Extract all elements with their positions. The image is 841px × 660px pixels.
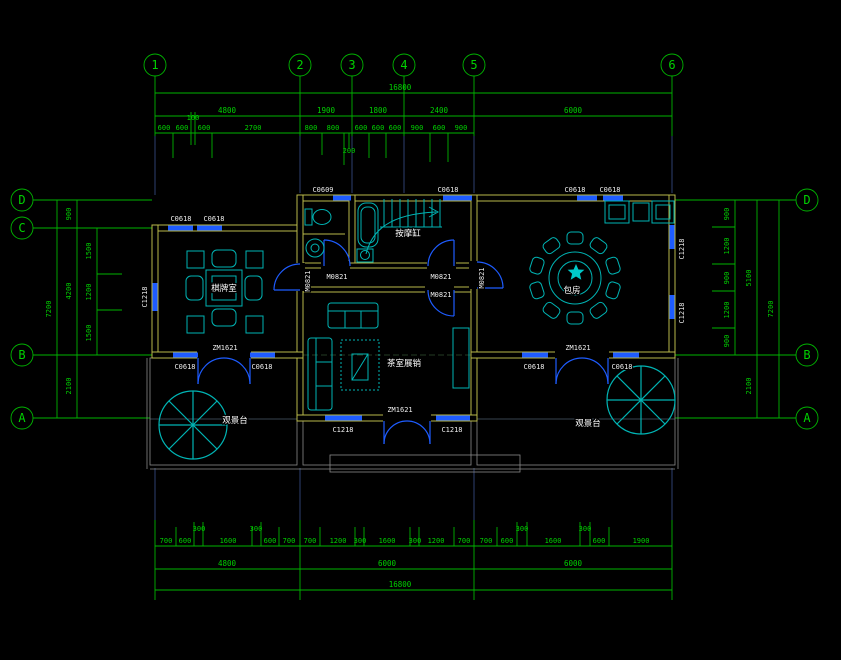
deck-left: [150, 358, 297, 465]
dim-bot-sub: 600: [501, 537, 514, 545]
axis-label: A: [803, 411, 811, 425]
dim-top-seg: 1800: [369, 106, 388, 115]
axis-label: D: [18, 193, 25, 207]
grid-bubble-column-6: 6: [661, 54, 683, 136]
window-label: C0618: [437, 186, 458, 194]
window-c0618: [603, 196, 623, 201]
window-label: C0618: [599, 186, 620, 194]
axis-label: D: [803, 193, 810, 207]
window-label: C0618: [170, 215, 191, 223]
dim-bot-sub: 600: [179, 537, 192, 545]
dim-top-seg: 6000: [564, 106, 583, 115]
dim-bot-seg: 4800: [218, 559, 237, 568]
wall-axis2: [297, 195, 303, 421]
window-label: C1218: [441, 426, 462, 434]
axis-label: 1: [151, 58, 158, 72]
window-c1218: [436, 416, 470, 421]
window-c0618: [173, 353, 198, 358]
dim-top-sub: 600: [176, 124, 189, 132]
grid-bubble-row-B-left: B: [11, 344, 33, 366]
dim-top-sub: 100: [187, 114, 200, 122]
axis-label: A: [18, 411, 26, 425]
dim-left-total: 7200: [45, 301, 53, 318]
sink: [306, 239, 324, 257]
axis-label: 2: [296, 58, 303, 72]
window-c0618: [443, 196, 472, 201]
deck-steps: [330, 455, 520, 472]
dim-right-total: 7200: [767, 301, 775, 318]
dim-bot-seg: 6000: [564, 559, 583, 568]
window-label: C0618: [251, 363, 272, 371]
window-c1218: [153, 283, 158, 311]
dim-top-sub: 600: [389, 124, 402, 132]
bathtub: [358, 203, 378, 247]
double-door-right-deck: [556, 358, 608, 384]
door-label: M0821: [478, 267, 486, 288]
axis-label: 4: [400, 58, 407, 72]
dimensions-top: 16800 4800 1900 1800 2400 6000 600 600 1…: [155, 83, 672, 165]
room-label-deck-left: 观景台: [222, 415, 248, 426]
dim-left-mid: 900: [65, 208, 73, 221]
dim-right-sub: 1200: [723, 302, 731, 319]
window-c0618: [250, 353, 275, 358]
dim-top-sub: 800: [327, 124, 340, 132]
window-label: C0618: [174, 363, 195, 371]
deck-right: [477, 358, 675, 465]
door-label: M0821: [304, 270, 312, 291]
floor-plan-svg: 1 2 3 4 5 6 D C B A D B A 16800 4800 190…: [0, 0, 841, 660]
grid-bubble-row-B-right: B: [796, 344, 818, 366]
axis-label: B: [803, 348, 810, 362]
washbasin: [357, 249, 373, 262]
dim-right-mid: 2100: [745, 378, 753, 395]
grid-bubble-row-D-right: D: [796, 189, 818, 211]
dim-bot-sub: 1600: [379, 537, 396, 545]
dim-left-sub: 1500: [85, 325, 93, 342]
dim-bot-sub: 700: [283, 537, 296, 545]
window-label: C1218: [678, 302, 686, 323]
axis-label: 6: [668, 58, 675, 72]
toilet: [305, 209, 331, 225]
door-label: M0821: [430, 291, 451, 299]
dim-top-sub: 800: [305, 124, 318, 132]
cabinets-private-room: [605, 201, 674, 223]
wall-axis5: [471, 195, 477, 421]
axis-label: C: [18, 221, 25, 235]
dim-top-sub: 900: [411, 124, 424, 132]
dim-top-ticks: [173, 112, 448, 165]
dim-bot-sub: 300: [516, 525, 529, 533]
window-label: C1218: [332, 426, 353, 434]
dimensions-left: 7200 900 4200 2100 1500 1200 1500: [45, 200, 122, 418]
dimensions-bottom: 700 600 300 1600 300 600 700 700 1200 30…: [155, 520, 672, 600]
dim-top-sub: 600: [433, 124, 446, 132]
dim-top-sub: 200: [343, 147, 356, 155]
dim-bot-sub: 700: [160, 537, 173, 545]
dim-bot-sub: 700: [480, 537, 493, 545]
dim-top-seg: 2400: [430, 106, 449, 115]
dim-bot-total: 16800: [389, 580, 412, 589]
window-c0618: [197, 226, 222, 231]
dim-top-sub: 600: [158, 124, 171, 132]
dimensions-right: 900 1200 900 1200 900 5100 2100 7200: [712, 200, 779, 418]
window-c0618: [168, 226, 193, 231]
window-label: C0618: [523, 363, 544, 371]
dim-bot-sub: 1200: [428, 537, 445, 545]
door-label: ZM1621: [565, 344, 590, 352]
axis-label: B: [18, 348, 25, 362]
door-gaps: [197, 261, 609, 423]
door-label: M0821: [326, 273, 347, 281]
dim-right-sub: 900: [723, 208, 731, 221]
double-door-tea-deck: [384, 421, 430, 444]
window-c1218: [670, 295, 675, 319]
dim-bot-sub: 600: [264, 537, 277, 545]
axis-stubs: [155, 136, 672, 520]
umbrella-right: [607, 366, 675, 434]
door-label: ZM1621: [212, 344, 237, 352]
window-c0609: [333, 196, 351, 201]
window-label: C0618: [203, 215, 224, 223]
window-label: C0618: [564, 186, 585, 194]
window-c1218: [670, 225, 675, 249]
dim-left-mid: 2100: [65, 378, 73, 395]
dim-left-sub: 1200: [85, 284, 93, 301]
dim-top-sub: 600: [372, 124, 385, 132]
window-label: C1218: [141, 286, 149, 307]
dim-right-mid: 5100: [745, 270, 753, 287]
window-c0618: [522, 353, 548, 358]
wall-bath-divider: [349, 195, 355, 266]
window-label: C0618: [611, 363, 632, 371]
dim-top-sub: 600: [355, 124, 368, 132]
dim-bot-sub: 300: [579, 525, 592, 533]
double-door-left-deck: [198, 358, 250, 384]
dim-left-sub: 1500: [85, 243, 93, 260]
dim-right-sub: 900: [723, 272, 731, 285]
grid-bubble-row-D-left: D: [11, 189, 33, 211]
cabinet-tea-room: [453, 328, 469, 388]
dim-top-seg: 4800: [218, 106, 237, 115]
grid-bubble-row-A-right: A: [796, 407, 818, 429]
room-label-card-room: 棋牌室: [211, 283, 237, 294]
window-label: C0609: [312, 186, 333, 194]
room-label-tea-room: 茶室展销: [387, 358, 422, 369]
dim-bot-sub: 1600: [545, 537, 562, 545]
dim-right-sub: 1200: [723, 238, 731, 255]
window-c1218: [325, 416, 362, 421]
window-c0618: [577, 196, 597, 201]
dim-bot-seg: 6000: [378, 559, 397, 568]
dim-bot-sub: 700: [458, 537, 471, 545]
dim-top-sub: 900: [455, 124, 468, 132]
round-dining-table: [529, 232, 621, 324]
dim-left-mid: 4200: [65, 283, 73, 300]
dim-bot-sub: 1600: [220, 537, 237, 545]
window-label: C1218: [678, 238, 686, 259]
door-label: ZM1621: [387, 406, 412, 414]
dim-bot-sub: 600: [593, 537, 606, 545]
dim-bot-sub: 1200: [330, 537, 347, 545]
dim-right-sub: 900: [723, 335, 731, 348]
room-label-bath-tub: 按摩缸: [395, 228, 421, 239]
star-icon: [568, 264, 585, 280]
dim-top-sub: 2700: [245, 124, 262, 132]
dim-top-seg: 1900: [317, 106, 336, 115]
sofa-left: [308, 338, 332, 410]
grid-bubble-row-A-left: A: [11, 407, 33, 429]
dim-bot-sub: 700: [304, 537, 317, 545]
grid-bubble-row-C-left: C: [11, 217, 33, 239]
dim-top-total: 16800: [389, 83, 412, 92]
sofa-top: [328, 303, 378, 328]
room-label-private-room: 包房: [563, 285, 580, 296]
dim-bot-sub: 1900: [633, 537, 650, 545]
room-labels: 棋牌室 包房 茶室展销 按摩缸 观景台 观景台: [211, 228, 601, 429]
rug-and-tea-table: [341, 340, 379, 390]
axis-label: 3: [348, 58, 355, 72]
axis-label: 5: [470, 58, 477, 72]
window-c0618: [613, 353, 639, 358]
cad-floor-plan: 1 2 3 4 5 6 D C B A D B A 16800 4800 190…: [0, 0, 841, 660]
door-label: M0821: [430, 273, 451, 281]
dim-top-sub: 600: [198, 124, 211, 132]
room-label-deck-right: 观景台: [575, 418, 601, 429]
opening-labels: C0609 C0618 C0618 C0618 C0618 C0618 C121…: [141, 186, 686, 434]
umbrella-left: [159, 391, 227, 459]
